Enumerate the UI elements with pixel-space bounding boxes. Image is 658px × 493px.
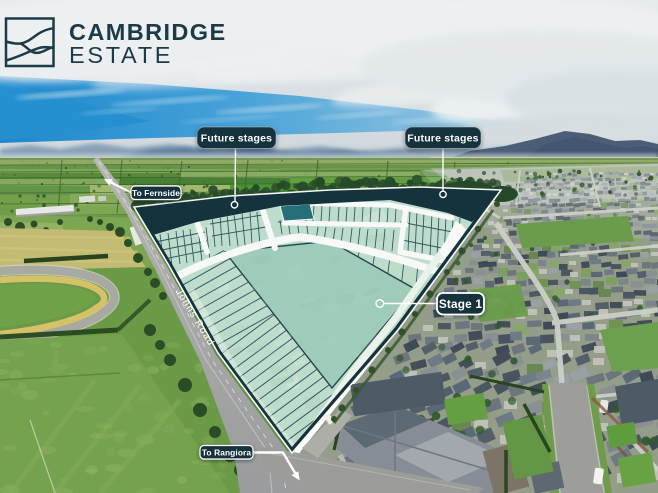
svg-text:Future stages: Future stages: [407, 133, 478, 145]
svg-text:Stage 1: Stage 1: [439, 297, 483, 311]
svg-text:Future stages: Future stages: [201, 133, 272, 145]
svg-text:To Fernside: To Fernside: [132, 188, 180, 198]
svg-text:ESTATE: ESTATE: [69, 42, 173, 68]
svg-text:To Rangiora: To Rangiora: [202, 447, 252, 457]
